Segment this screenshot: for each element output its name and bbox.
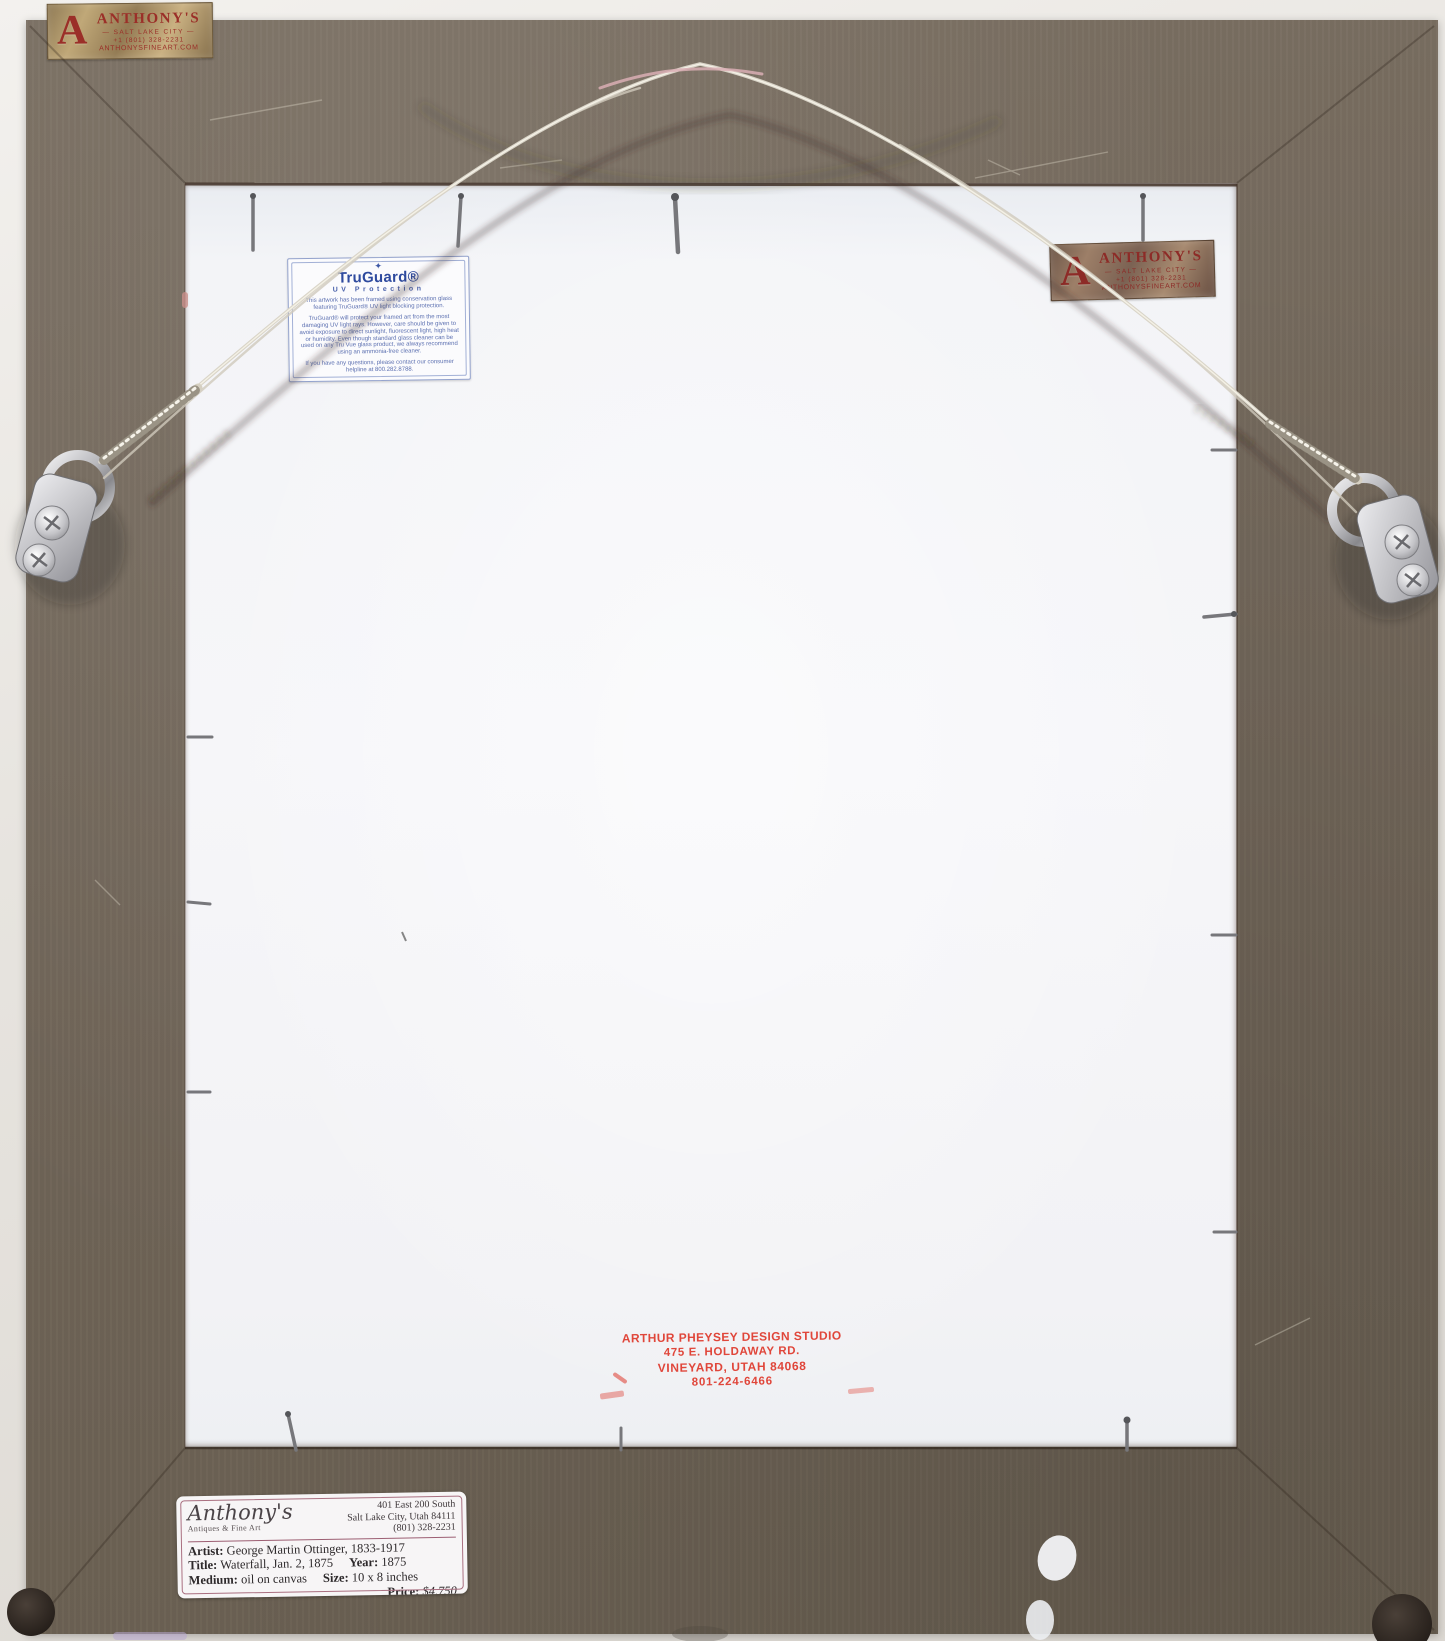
size-label: Size: — [323, 1570, 349, 1584]
title-value: Waterfall, Jan. 2, 1875 — [220, 1556, 333, 1572]
gallery-logo-subtitle: Antiques & Fine Art — [188, 1523, 293, 1534]
stamp-studio-name: ARTHUR PHEYSEY DESIGN STUDIO — [622, 1328, 842, 1346]
truguard-uv-label: ✦ TruGuard® UV Protection This artwork h… — [287, 256, 471, 383]
plaque-name: ANTHONY'S — [1097, 248, 1205, 268]
plaque-name: ANTHONY'S — [94, 10, 203, 28]
medium-label: Medium: — [188, 1572, 238, 1587]
framed-painting-back-photo: A ANTHONY'S — SALT LAKE CITY — +1 (801) … — [0, 0, 1445, 1641]
truguard-paragraph-3: If you have any questions, please contac… — [290, 359, 470, 375]
design-studio-stamp: ARTHUR PHEYSEY DESIGN STUDIO 475 E. HOLD… — [622, 1328, 843, 1391]
stamp-phone: 801-224-6466 — [622, 1373, 842, 1391]
artist-label: Artist: — [188, 1543, 224, 1558]
year-value: 1875 — [381, 1555, 406, 1569]
gallery-address-phone: (801) 328-2231 — [347, 1522, 456, 1535]
plaque-website: ANTHONYSFINEART.COM — [94, 44, 203, 52]
dealer-plaque-top-left: A ANTHONY'S — SALT LAKE CITY — +1 (801) … — [47, 2, 214, 60]
anthonys-logo-icon: A — [1060, 253, 1091, 292]
truguard-subtitle: UV Protection — [289, 285, 469, 295]
year-label: Year: — [349, 1555, 378, 1570]
truguard-brand: TruGuard® — [288, 269, 468, 287]
dealer-plaque-top-right: A ANTHONY'S — SALT LAKE CITY — +1 (801) … — [1049, 240, 1216, 302]
size-value: 10 x 8 inches — [352, 1569, 419, 1584]
plaque-city: — SALT LAKE CITY — — [94, 28, 203, 36]
anthonys-logo-icon: A — [57, 13, 88, 51]
gallery-info-label: Anthony's Antiques & Fine Art 401 East 2… — [176, 1491, 468, 1598]
title-label: Title: — [188, 1558, 217, 1573]
gallery-script-logo: Anthony's — [187, 1502, 293, 1524]
truguard-paragraph-2: TruGuard® will protect your framed art f… — [289, 314, 470, 358]
truguard-paragraph-1: This artwork has been framed using conse… — [289, 296, 469, 312]
medium-value: oil on canvas — [241, 1571, 307, 1586]
plaque-phone: +1 (801) 328-2231 — [94, 36, 203, 44]
